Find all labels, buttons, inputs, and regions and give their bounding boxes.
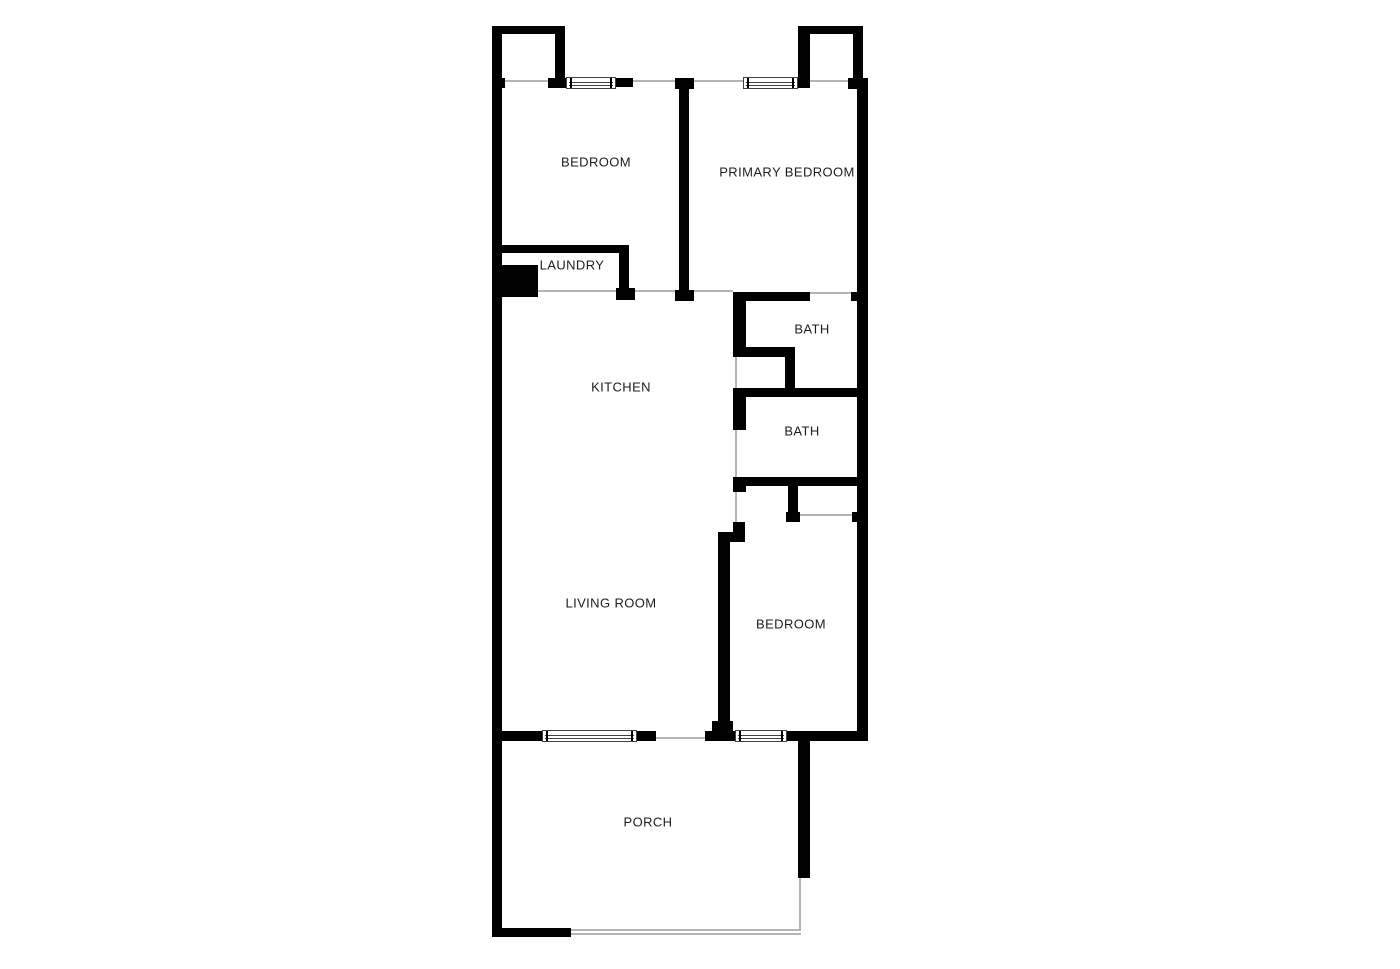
bath2-left-wall bbox=[733, 388, 746, 430]
window-pane-line bbox=[746, 82, 795, 83]
window-pane-line bbox=[746, 85, 795, 86]
room-label-porch: PORCH bbox=[624, 815, 673, 830]
bedroom3-closet-left-wall bbox=[788, 486, 798, 514]
window-pane-line bbox=[545, 735, 634, 736]
window-primary-bedroom bbox=[743, 77, 798, 89]
porch-bottom-wall bbox=[492, 928, 571, 937]
right-wall-stub-mid bbox=[851, 292, 868, 301]
porch-screen-bottom-inner bbox=[571, 933, 801, 935]
top-right-closet-left-wall bbox=[798, 26, 810, 88]
bath1-bottom-wall bbox=[733, 347, 793, 357]
bedroom3-closet-opening bbox=[798, 514, 852, 516]
laundry-top-wall bbox=[492, 245, 628, 253]
bath1-left-wall bbox=[733, 292, 746, 353]
room-label-bedroom-3: BEDROOM bbox=[756, 617, 826, 632]
divider-bottom-foot bbox=[675, 290, 694, 301]
bottom-wall-seg-c bbox=[705, 731, 735, 741]
top-right-closet-right-wall bbox=[853, 26, 863, 80]
porch-door-opening bbox=[656, 737, 705, 739]
top-left-closet-foot bbox=[548, 78, 567, 88]
room-label-kitchen: KITCHEN bbox=[591, 380, 651, 395]
bath2-bottom-wall bbox=[733, 477, 868, 486]
right-exterior-wall bbox=[857, 78, 868, 741]
window-end-cap bbox=[739, 731, 741, 741]
laundry-unit-block bbox=[492, 265, 538, 297]
window-end-cap bbox=[610, 78, 612, 88]
top-left-closet-right-wall bbox=[555, 26, 565, 82]
room-label-bath-1: BATH bbox=[794, 322, 829, 337]
bedroom3-closet-left-foot bbox=[786, 512, 800, 522]
bath2-door-opening bbox=[735, 430, 737, 477]
top-opening-left-of-divider bbox=[633, 80, 677, 82]
window-bedroom-top bbox=[566, 77, 616, 89]
window-end-cap bbox=[631, 731, 633, 741]
window-pane-line bbox=[569, 85, 613, 86]
floor-plan: BEDROOMPRIMARY BEDROOMLAUNDRYKITCHENBATH… bbox=[0, 0, 1400, 969]
window-end-cap bbox=[546, 731, 548, 741]
laundry-right-wall bbox=[619, 245, 629, 292]
room-label-bedroom-1: BEDROOM bbox=[561, 155, 631, 170]
top-wall-window-right-seg bbox=[615, 78, 633, 87]
window-end-cap bbox=[781, 731, 783, 741]
window-living-room bbox=[542, 730, 637, 742]
room-label-laundry: LAUNDRY bbox=[540, 258, 605, 273]
window-end-cap bbox=[792, 78, 794, 88]
bottom-wall-seg-b bbox=[637, 731, 656, 741]
porch-screen-right bbox=[799, 878, 801, 931]
bottom-wall-seg-a bbox=[492, 731, 542, 741]
porch-screen-bottom-outer bbox=[571, 929, 801, 931]
hall-boundary-line bbox=[538, 290, 733, 292]
closet-opening-left bbox=[504, 80, 548, 82]
left-exterior-wall bbox=[492, 26, 502, 937]
room-label-bath-2: BATH bbox=[784, 424, 819, 439]
room-label-living-room: LIVING ROOM bbox=[565, 596, 656, 611]
window-pane-line bbox=[738, 735, 784, 736]
closet-opening-right bbox=[810, 80, 848, 82]
window-end-cap bbox=[570, 78, 572, 88]
top-opening-right-of-divider bbox=[693, 80, 743, 82]
laundry-right-foot bbox=[616, 288, 635, 300]
primary-bath-door-opening bbox=[810, 292, 851, 294]
window-pane-line bbox=[545, 738, 634, 739]
room-label-primary-bedroom: PRIMARY BEDROOM bbox=[719, 165, 855, 180]
window-end-cap bbox=[747, 78, 749, 88]
top-wall-left-stub bbox=[492, 78, 505, 88]
bath2-top-wall bbox=[733, 388, 868, 397]
linen-nook-opening bbox=[735, 353, 737, 389]
window-pane-line bbox=[569, 82, 613, 83]
bath2-bottom-left-foot bbox=[733, 477, 746, 492]
window-bedroom-bottom bbox=[735, 730, 787, 742]
bedroom3-closet-right-stub bbox=[852, 512, 862, 522]
bedroom3-left-wall bbox=[718, 532, 730, 732]
bedroom-divider-wall bbox=[679, 78, 689, 301]
window-pane-line bbox=[738, 738, 784, 739]
porch-right-wall bbox=[798, 740, 810, 878]
